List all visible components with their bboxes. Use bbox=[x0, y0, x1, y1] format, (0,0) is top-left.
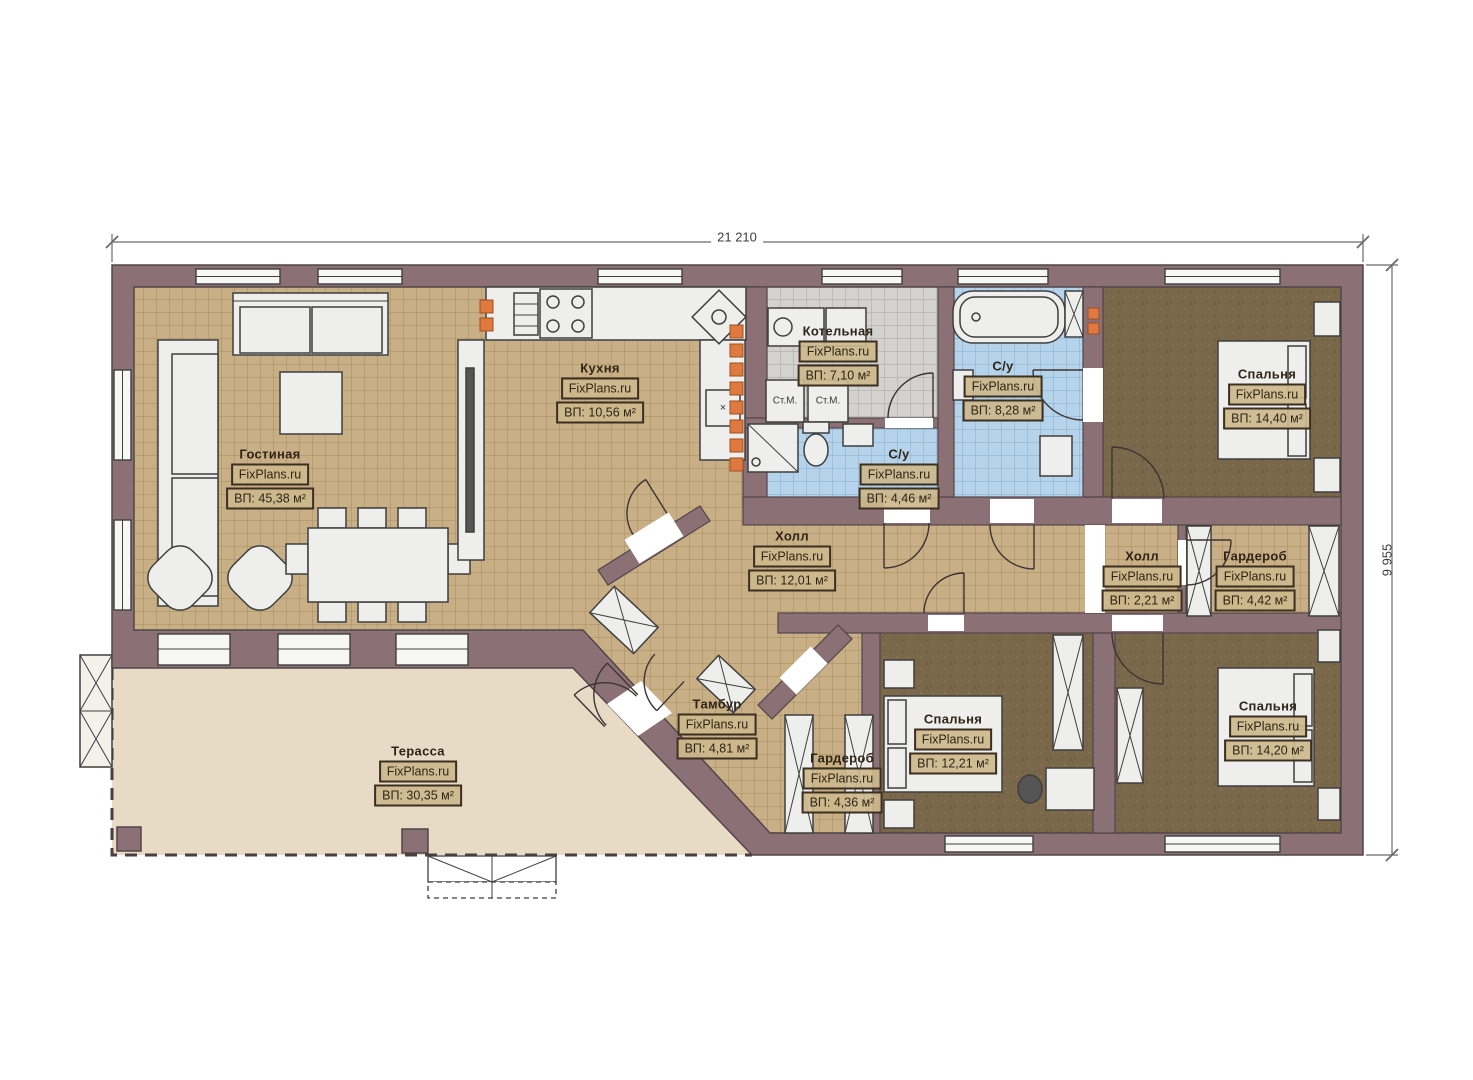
shower bbox=[748, 424, 798, 472]
room-area: ВП: 14,40 м² bbox=[1223, 408, 1311, 430]
room-area: ВП: 4,46 м² bbox=[859, 488, 940, 510]
tv-stand bbox=[458, 340, 484, 560]
room-label-bedroom-1: Спальня FixPlans.ru ВП: 14,40 м² bbox=[1223, 367, 1311, 430]
room-name: Спальня bbox=[924, 712, 982, 727]
bathtub bbox=[953, 291, 1065, 343]
room-label-bath-big: С/у FixPlans.ru ВП: 8,28 м² bbox=[963, 359, 1044, 422]
duct-shaft bbox=[1065, 291, 1083, 337]
watermark: FixPlans.ru bbox=[231, 464, 310, 486]
floor-plan-page: 21 210 9 955 Гостиная FixPlans.ru ВП: 45… bbox=[0, 0, 1473, 1080]
room-name: Котельная bbox=[803, 324, 874, 339]
room-label-hall-big: Холл FixPlans.ru ВП: 12,01 м² bbox=[748, 529, 836, 592]
washer-label: Ст.М. bbox=[816, 396, 841, 407]
room-name: Спальня bbox=[1238, 367, 1296, 382]
watermark: FixPlans.ru bbox=[561, 378, 640, 400]
room-name: Холл bbox=[1125, 549, 1159, 564]
window bbox=[945, 836, 1033, 852]
room-label-bath-small: С/у FixPlans.ru ВП: 4,46 м² bbox=[859, 447, 940, 510]
toilet bbox=[803, 422, 829, 466]
room-name: Кухня bbox=[580, 361, 620, 376]
room-label-hall-small: Холл FixPlans.ru ВП: 2,21 м² bbox=[1102, 549, 1183, 612]
terrace-post bbox=[402, 829, 428, 853]
closet bbox=[1053, 635, 1083, 750]
closet bbox=[1309, 526, 1339, 616]
sofa-small bbox=[233, 293, 388, 355]
washer-label: Ст.М. bbox=[773, 396, 798, 407]
room-area: ВП: 12,21 м² bbox=[909, 753, 997, 775]
window bbox=[1165, 836, 1280, 852]
window bbox=[158, 634, 230, 665]
terrace-stairs bbox=[428, 856, 556, 898]
watermark: FixPlans.ru bbox=[914, 729, 993, 751]
watermark: FixPlans.ru bbox=[1229, 716, 1308, 738]
watermark: FixPlans.ru bbox=[1103, 566, 1182, 588]
room-area: ВП: 2,21 м² bbox=[1102, 590, 1183, 612]
watermark: FixPlans.ru bbox=[964, 376, 1043, 398]
desk bbox=[1018, 768, 1094, 810]
room-label-boiler: Котельная FixPlans.ru ВП: 7,10 м² bbox=[798, 324, 879, 387]
watermark: FixPlans.ru bbox=[1216, 566, 1295, 588]
room-label-wardrobe-1: Гардероб FixPlans.ru ВП: 4,42 м² bbox=[1215, 549, 1296, 612]
room-label-wardrobe-2: Гардероб FixPlans.ru ВП: 4,36 м² bbox=[802, 751, 883, 814]
room-name: Гардероб bbox=[1223, 549, 1287, 564]
coffee-table bbox=[280, 372, 342, 434]
window bbox=[114, 370, 131, 460]
room-label-kitchen: Кухня FixPlans.ru ВП: 10,56 м² bbox=[556, 361, 644, 424]
watermark: FixPlans.ru bbox=[860, 464, 939, 486]
window bbox=[598, 269, 682, 284]
window bbox=[278, 634, 350, 665]
watermark: FixPlans.ru bbox=[753, 546, 832, 568]
window bbox=[318, 269, 402, 284]
room-name: Гостиная bbox=[239, 447, 300, 462]
room-name: Холл bbox=[775, 529, 809, 544]
sink bbox=[843, 424, 873, 446]
room-area: ВП: 45,38 м² bbox=[226, 488, 314, 510]
floor-plan-drawing bbox=[0, 0, 1473, 1080]
window bbox=[396, 634, 468, 665]
terrace-bench bbox=[80, 655, 112, 767]
closet bbox=[1117, 688, 1143, 783]
room-area: ВП: 4,36 м² bbox=[802, 792, 883, 814]
watermark: FixPlans.ru bbox=[1228, 384, 1307, 406]
room-name: С/у bbox=[992, 359, 1013, 374]
room-area: ВП: 4,42 м² bbox=[1215, 590, 1296, 612]
window bbox=[196, 269, 280, 284]
watermark: FixPlans.ru bbox=[678, 714, 757, 736]
room-label-terrace: Терасса FixPlans.ru ВП: 30,35 м² bbox=[374, 744, 462, 807]
room-area: ВП: 4,81 м² bbox=[677, 738, 758, 760]
room-label-bedroom-2: Спальня FixPlans.ru ВП: 12,21 м² bbox=[909, 712, 997, 775]
room-area: ВП: 12,01 м² bbox=[748, 570, 836, 592]
room-name: С/у bbox=[888, 447, 909, 462]
watermark: FixPlans.ru bbox=[803, 768, 882, 790]
watermark: FixPlans.ru bbox=[799, 341, 878, 363]
room-name: Гардероб bbox=[810, 751, 874, 766]
room-area: ВП: 30,35 м² bbox=[374, 785, 462, 807]
room-area: ВП: 10,56 м² bbox=[556, 402, 644, 424]
window bbox=[114, 520, 131, 610]
watermark: FixPlans.ru bbox=[379, 761, 458, 783]
room-area: ВП: 14,20 м² bbox=[1224, 740, 1312, 762]
window bbox=[822, 269, 902, 284]
stove bbox=[540, 289, 592, 338]
room-name: Спальня bbox=[1239, 699, 1297, 714]
corner-unit-mark: × bbox=[720, 402, 726, 414]
window bbox=[1165, 269, 1280, 284]
terrace-post bbox=[117, 827, 141, 851]
room-name: Тамбур bbox=[693, 697, 742, 712]
room-area: ВП: 7,10 м² bbox=[798, 365, 879, 387]
room-area: ВП: 8,28 м² bbox=[963, 400, 1044, 422]
room-name: Терасса bbox=[391, 744, 445, 759]
bath-cabinet bbox=[1040, 436, 1072, 476]
room-label-vestibule: Тамбур FixPlans.ru ВП: 4,81 м² bbox=[677, 697, 758, 760]
dimension-width: 21 210 bbox=[711, 230, 763, 245]
dimension-height: 9 955 bbox=[1380, 538, 1395, 583]
room-label-bedroom-3: Спальня FixPlans.ru ВП: 14,20 м² bbox=[1224, 699, 1312, 762]
window bbox=[958, 269, 1048, 284]
room-label-living: Гостиная FixPlans.ru ВП: 45,38 м² bbox=[226, 447, 314, 510]
